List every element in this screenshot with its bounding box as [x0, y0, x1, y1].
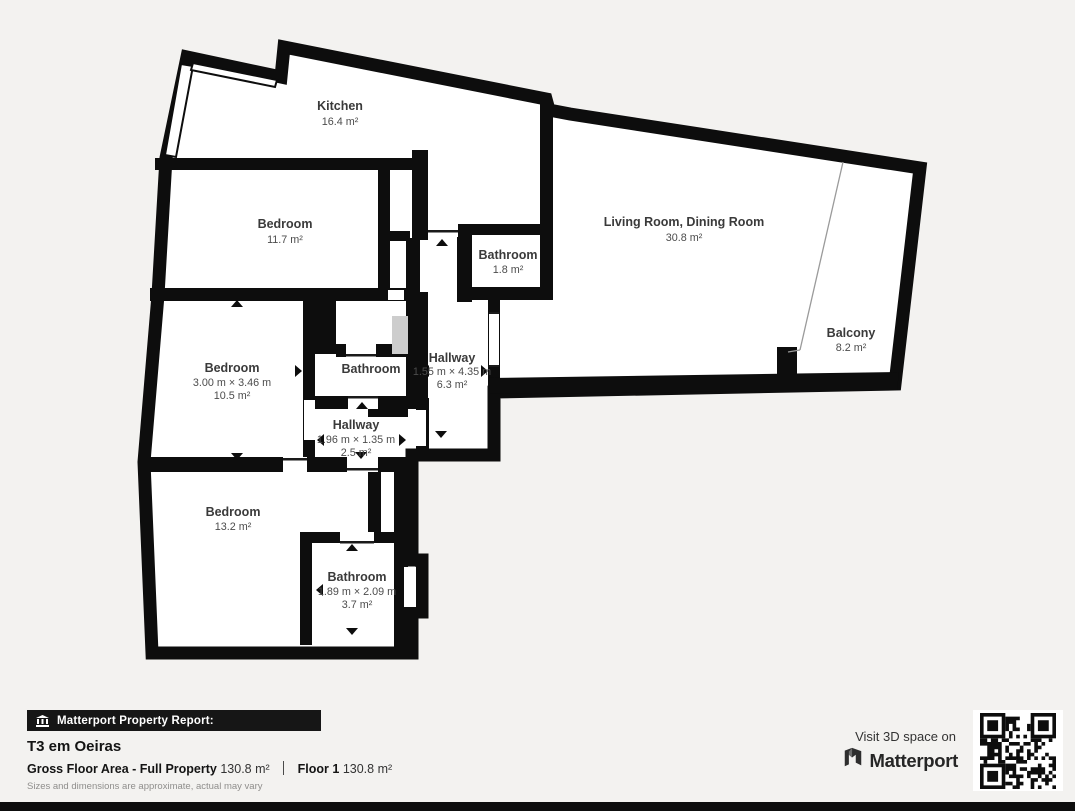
disclaimer-text: Sizes and dimensions are approximate, ac…: [27, 781, 263, 792]
room-dims: 1.55 m × 4.35 m: [413, 366, 491, 378]
room-area: 16.4 m²: [322, 116, 359, 128]
visit-3d-label: Visit 3D space on: [838, 729, 958, 744]
room-area: 1.8 m²: [493, 264, 524, 276]
qr-code: [973, 710, 1063, 791]
matterport-logo-icon: [842, 747, 864, 774]
room-name: Bedroom: [258, 217, 313, 231]
room-dims: 1.96 m × 1.35 m: [317, 434, 395, 446]
gross-floor-area-value: 130.8 m²: [220, 762, 269, 776]
room-name: Bathroom: [327, 570, 386, 584]
room-area: 8.2 m²: [836, 342, 867, 354]
matterport-wordmark: Matterport: [870, 750, 958, 772]
room-area: 2.5 m²: [341, 447, 372, 459]
matterport-floorplan-report: { "rooms": { "kitchen": {"name": "Kitche…: [0, 0, 1075, 811]
report-badge: Matterport Property Report:: [27, 710, 321, 731]
room-name: Bathroom: [341, 362, 400, 376]
room-dims: 1.89 m × 2.09 m: [318, 586, 396, 598]
room-area: 6.3 m²: [437, 379, 468, 391]
room-name: Hallway: [429, 351, 476, 365]
building-icon: [36, 715, 49, 727]
floor-value: 130.8 m²: [343, 762, 392, 776]
report-badge-label: Matterport Property Report:: [57, 715, 214, 727]
room-name: Hallway: [333, 418, 380, 432]
room-area: 30.8 m²: [666, 232, 703, 244]
room-area: 3.7 m²: [342, 599, 373, 611]
room-name: Kitchen: [317, 99, 363, 113]
room-name: Bedroom: [206, 505, 261, 519]
floor-label: Floor 1: [298, 762, 340, 776]
bottom-bar: [0, 802, 1075, 811]
room-dims: 3.00 m × 3.46 m: [193, 377, 271, 389]
room-name: Bedroom: [205, 361, 260, 375]
room-area: 11.7 m²: [267, 234, 303, 246]
room-area: 13.2 m²: [215, 521, 252, 533]
property-title: T3 em Oeiras: [27, 738, 121, 755]
floor-plan: Kitchen 16.4 m² Bedroom 11.7 m² Living R…: [0, 0, 1075, 811]
room-label-bathroom-mid: Bathroom: [341, 362, 400, 376]
visit-3d-space: Visit 3D space on Matterport: [838, 729, 958, 774]
gross-floor-area-label: Gross Floor Area - Full Property: [27, 762, 217, 776]
area-summary: Gross Floor Area - Full Property 130.8 m…: [27, 761, 392, 776]
room-name: Living Room, Dining Room: [604, 215, 764, 229]
room-area: 10.5 m²: [214, 390, 251, 402]
divider: [283, 761, 284, 775]
room-name: Bathroom: [478, 248, 537, 262]
floorplan-outline: [144, 47, 920, 653]
room-name: Balcony: [827, 326, 876, 340]
utility-block: [392, 316, 408, 354]
